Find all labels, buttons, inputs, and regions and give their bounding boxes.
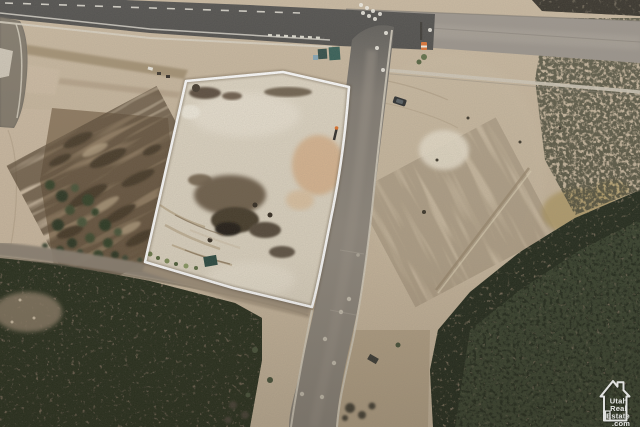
watermark-line: .com bbox=[612, 419, 630, 427]
aerial-photo: Utah Real Estate .com bbox=[0, 0, 640, 427]
aerial-photo-canvas: Utah Real Estate .com bbox=[0, 0, 640, 427]
light-cast bbox=[0, 0, 640, 427]
